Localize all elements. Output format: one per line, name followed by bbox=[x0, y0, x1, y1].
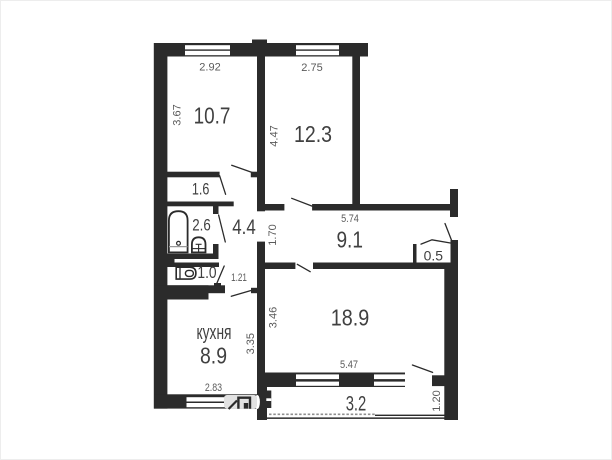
svg-text:8.9: 8.9 bbox=[200, 343, 227, 369]
svg-text:3.35: 3.35 bbox=[245, 333, 257, 354]
svg-text:2.6: 2.6 bbox=[192, 216, 211, 235]
svg-text:10.7: 10.7 bbox=[194, 103, 231, 129]
svg-text:4.47: 4.47 bbox=[268, 125, 280, 146]
svg-text:5.74: 5.74 bbox=[341, 213, 359, 225]
svg-text:2.83: 2.83 bbox=[205, 382, 222, 394]
svg-text:1.6: 1.6 bbox=[192, 180, 210, 199]
svg-text:0.5: 0.5 bbox=[424, 248, 443, 263]
svg-text:1.20: 1.20 bbox=[431, 390, 443, 411]
svg-text:12.3: 12.3 bbox=[294, 121, 332, 147]
svg-text:1.0: 1.0 bbox=[197, 263, 216, 282]
svg-text:кухня: кухня bbox=[197, 322, 232, 344]
svg-text:3.46: 3.46 bbox=[268, 307, 280, 328]
svg-text:5.47: 5.47 bbox=[340, 359, 358, 371]
svg-text:1.70: 1.70 bbox=[267, 224, 279, 245]
svg-text:2.92: 2.92 bbox=[199, 61, 220, 73]
svg-text:3.2: 3.2 bbox=[346, 392, 367, 416]
svg-text:9.1: 9.1 bbox=[336, 227, 363, 253]
svg-text:1.21: 1.21 bbox=[231, 272, 247, 284]
svg-text:2.75: 2.75 bbox=[301, 62, 322, 74]
svg-text:18.9: 18.9 bbox=[331, 305, 370, 331]
svg-text:3.67: 3.67 bbox=[171, 104, 183, 125]
svg-text:4.4: 4.4 bbox=[232, 216, 256, 239]
